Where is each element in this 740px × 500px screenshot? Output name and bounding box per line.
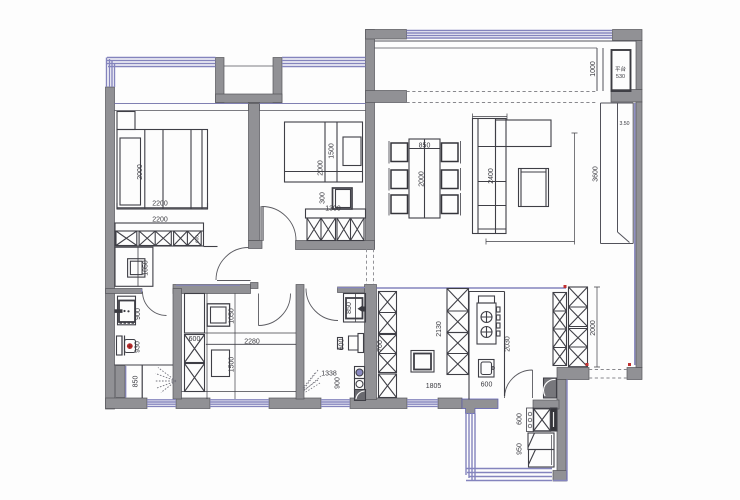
svg-text:930: 930 <box>135 341 142 353</box>
svg-text:1000: 1000 <box>590 61 597 77</box>
svg-text:3.50: 3.50 <box>619 121 629 127</box>
svg-text:600: 600 <box>339 339 346 351</box>
svg-text:1338: 1338 <box>321 371 337 378</box>
svg-text:平台: 平台 <box>615 65 627 73</box>
svg-text:1500: 1500 <box>229 357 236 373</box>
svg-text:2200: 2200 <box>152 201 168 208</box>
svg-text:700: 700 <box>377 340 384 352</box>
svg-text:530: 530 <box>616 74 625 80</box>
svg-text:600: 600 <box>517 413 524 425</box>
svg-text:2000: 2000 <box>318 160 325 176</box>
svg-text:2000: 2000 <box>137 164 144 180</box>
svg-text:2200: 2200 <box>152 217 168 224</box>
svg-text:2030: 2030 <box>505 336 512 352</box>
svg-text:1500: 1500 <box>329 143 336 159</box>
svg-text:850: 850 <box>133 376 140 388</box>
svg-text:2400: 2400 <box>488 168 495 184</box>
svg-text:600: 600 <box>481 382 493 389</box>
svg-text:2000: 2000 <box>419 171 426 187</box>
svg-text:2000: 2000 <box>590 320 597 336</box>
svg-text:3600: 3600 <box>593 166 600 182</box>
svg-text:850: 850 <box>419 143 431 150</box>
svg-text:600: 600 <box>189 336 201 343</box>
svg-text:1300: 1300 <box>325 206 341 213</box>
svg-text:1050: 1050 <box>143 260 150 276</box>
svg-text:2130: 2130 <box>436 321 443 337</box>
svg-text:850: 850 <box>346 302 353 314</box>
svg-text:300: 300 <box>320 192 327 204</box>
svg-text:900: 900 <box>135 308 142 320</box>
svg-text:1050: 1050 <box>229 308 236 324</box>
svg-text:950: 950 <box>517 443 524 455</box>
svg-text:1805: 1805 <box>426 383 442 390</box>
svg-text:600: 600 <box>195 235 200 243</box>
svg-text:900: 900 <box>335 377 342 389</box>
svg-text:2280: 2280 <box>244 339 260 346</box>
